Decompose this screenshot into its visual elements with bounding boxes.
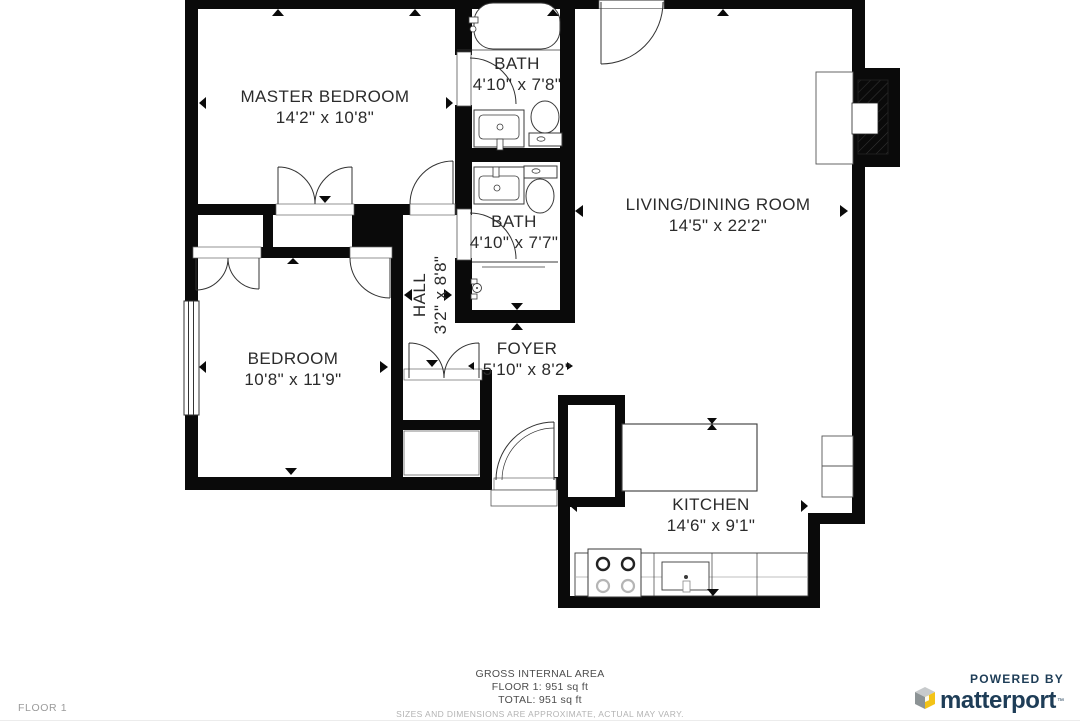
room-label-kitchen: KITCHEN 14'6" x 9'1" — [667, 494, 756, 536]
room-dims: 4'10" x 7'7" — [470, 232, 559, 253]
room-name: BATH — [470, 211, 559, 232]
windows — [184, 301, 199, 415]
fireplace — [816, 72, 888, 164]
room-label-foyer: FOYER 5'10" x 8'2" — [483, 338, 572, 380]
room-dims: 14'6" x 9'1" — [667, 515, 756, 536]
floorplan-canvas: MASTER BEDROOM 14'2" x 10'8" BATH 4'10" … — [0, 0, 1080, 721]
room-dims: 5'10" x 8'2" — [483, 359, 572, 380]
room-dims: 4'10" x 7'8" — [473, 74, 562, 95]
room-name: BEDROOM — [244, 348, 341, 369]
trademark-symbol: ™ — [1057, 698, 1064, 705]
room-name: BATH — [473, 53, 562, 74]
room-name: KITCHEN — [667, 494, 756, 515]
room-name: MASTER BEDROOM — [240, 86, 409, 107]
room-dims: 10'8" x 11'9" — [244, 369, 341, 390]
matterport-branding: POWERED BY matterport ™ — [915, 672, 1064, 715]
floor-label: FLOOR 1 — [18, 702, 67, 714]
room-name: HALL — [409, 256, 430, 335]
room-dims: 3'2" x 8'8" — [430, 256, 451, 335]
room-name: LIVING/DINING ROOM — [626, 194, 811, 215]
room-label-bedroom: BEDROOM 10'8" x 11'9" — [244, 348, 341, 390]
matterport-wordmark: matterport — [940, 689, 1056, 713]
room-name: FOYER — [483, 338, 572, 359]
room-label-living-dining: LIVING/DINING ROOM 14'5" x 22'2" — [626, 194, 811, 236]
room-label-bath-upper: BATH 4'10" x 7'8" — [473, 53, 562, 95]
powered-by-text: POWERED BY — [915, 672, 1064, 686]
matterport-cube-icon — [915, 687, 935, 715]
room-dims: 14'2" x 10'8" — [240, 107, 409, 128]
room-label-master-bedroom: MASTER BEDROOM 14'2" x 10'8" — [240, 86, 409, 128]
room-label-bath-lower: BATH 4'10" x 7'7" — [470, 211, 559, 253]
room-label-hall: HALL 3'2" x 8'8" — [409, 256, 451, 335]
room-dims: 14'5" x 22'2" — [626, 215, 811, 236]
